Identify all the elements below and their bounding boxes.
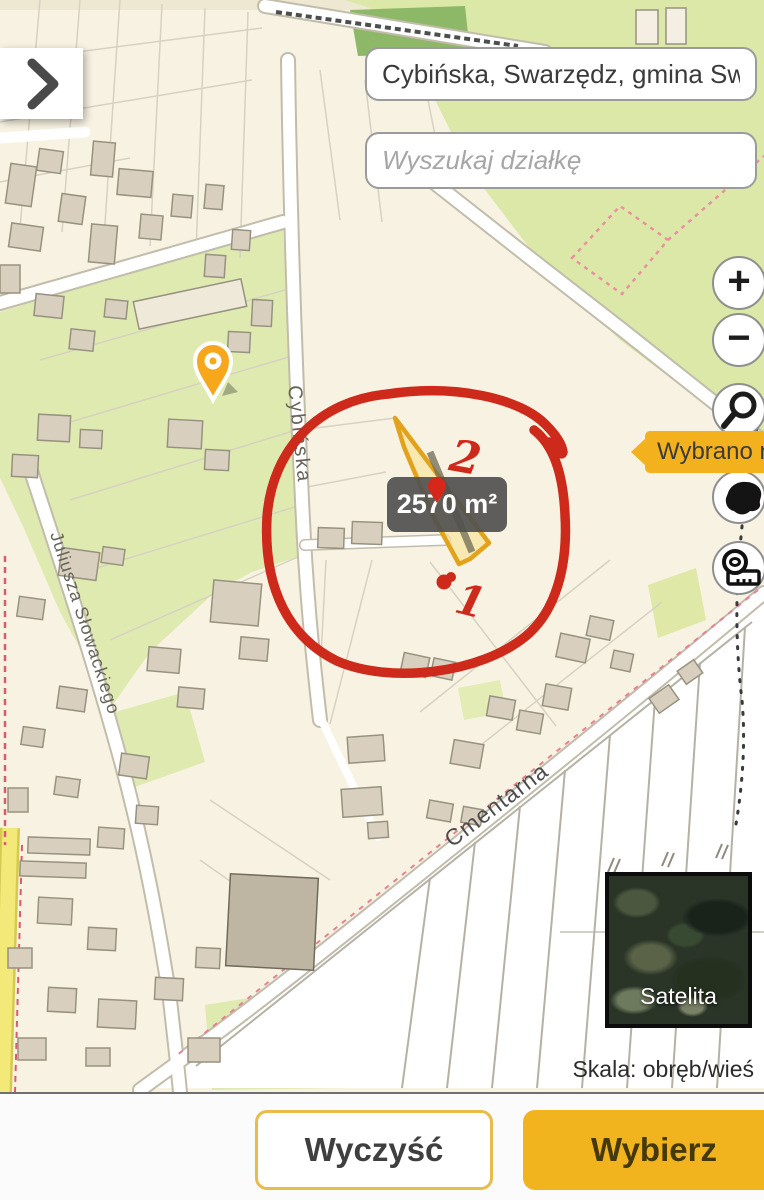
magnifier-icon bbox=[717, 388, 761, 432]
parcel-search-input[interactable] bbox=[365, 132, 757, 189]
zoom-out-button[interactable]: − bbox=[712, 313, 764, 367]
minus-icon: − bbox=[727, 318, 750, 358]
clear-button[interactable]: Wyczyść bbox=[255, 1110, 493, 1190]
satellite-layer-label: Satelita bbox=[609, 983, 748, 1010]
location-input[interactable] bbox=[365, 47, 757, 101]
badge-arrow bbox=[631, 438, 646, 466]
selection-badge: Wybrano ni bbox=[645, 431, 764, 473]
parcel-locate-button[interactable] bbox=[712, 383, 764, 437]
measure-button[interactable] bbox=[712, 541, 764, 595]
zoom-in-button[interactable]: + bbox=[712, 256, 764, 310]
region-mode-button[interactable] bbox=[712, 470, 764, 524]
app-screen: Cybińska Juliusza Słowackiego Cmentarna … bbox=[0, 0, 764, 1200]
tape-measure-icon bbox=[716, 547, 762, 589]
selection-badge-text: Wybrano ni bbox=[657, 438, 764, 466]
plus-icon: + bbox=[727, 261, 750, 301]
red-marker-icon bbox=[426, 477, 448, 505]
poland-outline-icon bbox=[716, 476, 762, 518]
chevron-right-icon bbox=[20, 55, 64, 113]
scale-label: Skala: obręb/wieś bbox=[572, 1056, 754, 1083]
satellite-layer-button[interactable]: Satelita bbox=[605, 872, 752, 1028]
footer-bar: Wyczyść Wybierz bbox=[0, 1092, 764, 1200]
expand-sidebar-button[interactable] bbox=[0, 48, 83, 119]
select-button[interactable]: Wybierz bbox=[523, 1110, 764, 1190]
